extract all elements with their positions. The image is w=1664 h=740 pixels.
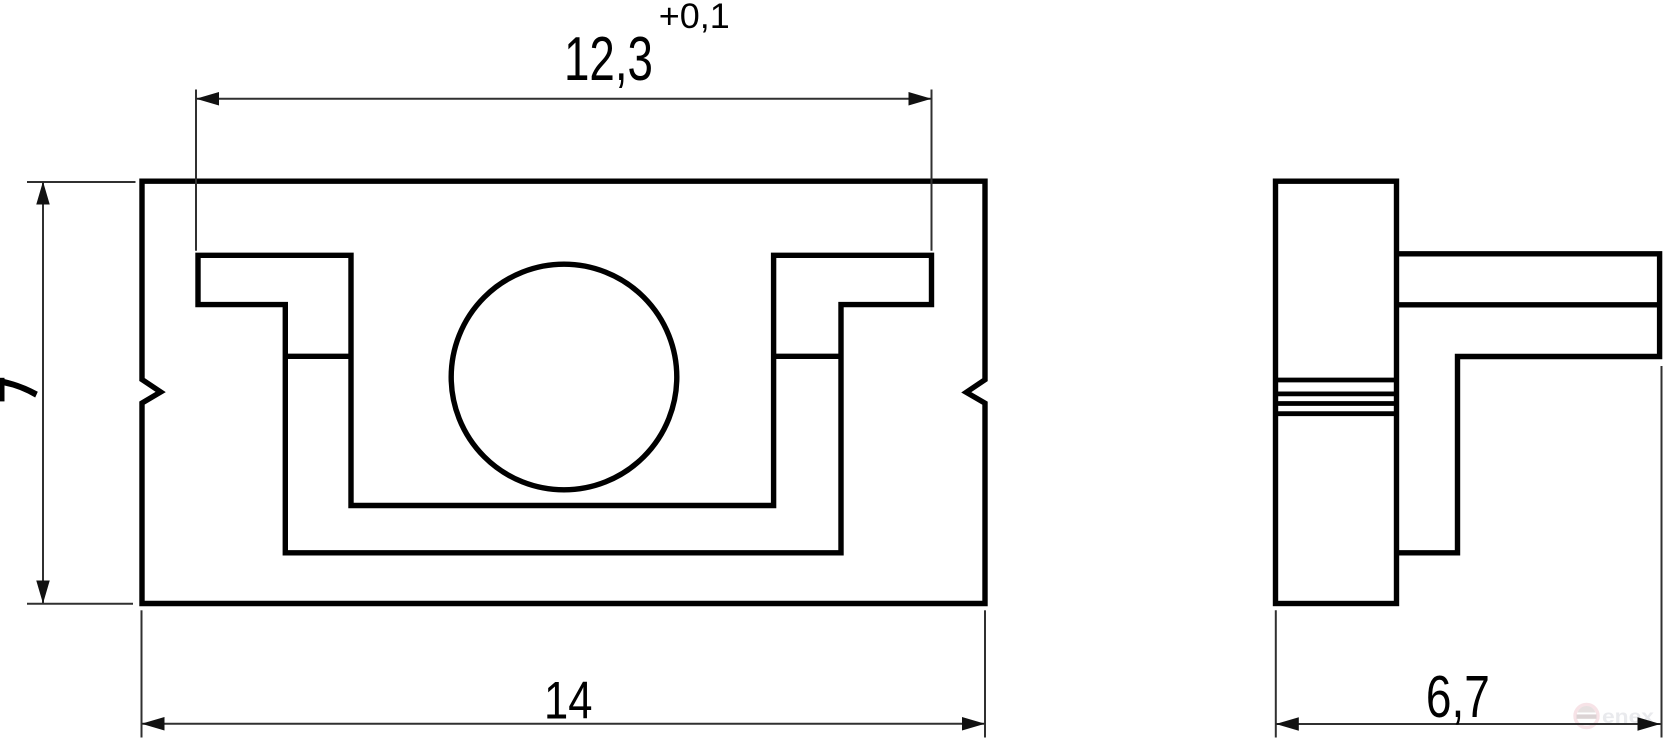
svg-text:14: 14	[544, 672, 592, 731]
svg-text:6,7: 6,7	[1426, 663, 1490, 730]
svg-text:+0,1: +0,1	[659, 0, 730, 36]
svg-text:12,3: 12,3	[564, 24, 653, 94]
